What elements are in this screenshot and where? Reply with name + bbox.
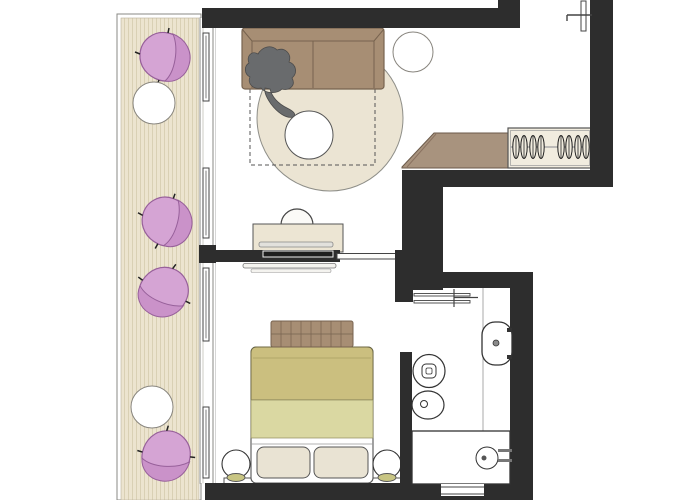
bathroom xyxy=(412,288,512,496)
washbasin xyxy=(482,322,512,365)
wall-bath-left xyxy=(400,352,412,490)
tap-icon xyxy=(507,355,512,359)
bathroom-sliding-door xyxy=(414,289,478,307)
wall-top-column xyxy=(498,0,520,28)
pillow xyxy=(314,447,368,478)
entry-door-handle xyxy=(567,15,592,21)
tub-tap-icon xyxy=(498,449,512,452)
balcony-table xyxy=(133,82,175,124)
bidet xyxy=(412,391,444,419)
wall-door-column xyxy=(395,250,413,302)
tub-tap-icon xyxy=(498,459,512,462)
balcony xyxy=(117,14,201,500)
media-console-shelf xyxy=(251,269,331,273)
bath-window-notch xyxy=(441,484,484,496)
tap-icon xyxy=(507,328,512,332)
bench-counter xyxy=(402,133,508,168)
bathtub xyxy=(412,431,512,484)
basin-drain xyxy=(493,340,499,346)
entry-hall xyxy=(402,128,592,168)
toilet xyxy=(413,355,445,388)
floor-plan-canvas xyxy=(0,0,700,500)
sliding-window-panel xyxy=(203,407,209,478)
sliding-window-panel xyxy=(203,168,209,238)
bedroom xyxy=(199,245,402,484)
desk-chair xyxy=(281,209,313,225)
door-handle xyxy=(454,289,478,307)
sliding-door-leaf xyxy=(337,254,399,260)
media-console xyxy=(243,264,336,269)
balcony-table xyxy=(131,386,173,428)
side-stool xyxy=(393,32,433,72)
wall-top xyxy=(202,8,520,28)
wardrobe xyxy=(508,128,592,168)
coffee-table xyxy=(285,111,333,159)
desk xyxy=(253,224,343,252)
bedside-lamp xyxy=(373,450,401,482)
bedside-lamp xyxy=(222,450,250,482)
double-bed xyxy=(251,321,373,483)
entry-door-leaf xyxy=(581,1,586,31)
entry-door xyxy=(567,1,592,31)
tv xyxy=(263,251,333,257)
partition-stub xyxy=(199,245,216,263)
tub-drain xyxy=(476,447,498,469)
sliding-window-panel xyxy=(203,33,209,101)
pillow xyxy=(257,447,310,478)
wall-bath-right xyxy=(510,277,533,497)
desk-shelf xyxy=(259,242,333,247)
quilted-throw xyxy=(271,321,353,347)
sliding-window-panel xyxy=(203,268,209,341)
floor-plan-drawing xyxy=(0,0,700,500)
tub-drain-dot xyxy=(482,456,487,461)
wall-right-upper xyxy=(590,0,613,187)
